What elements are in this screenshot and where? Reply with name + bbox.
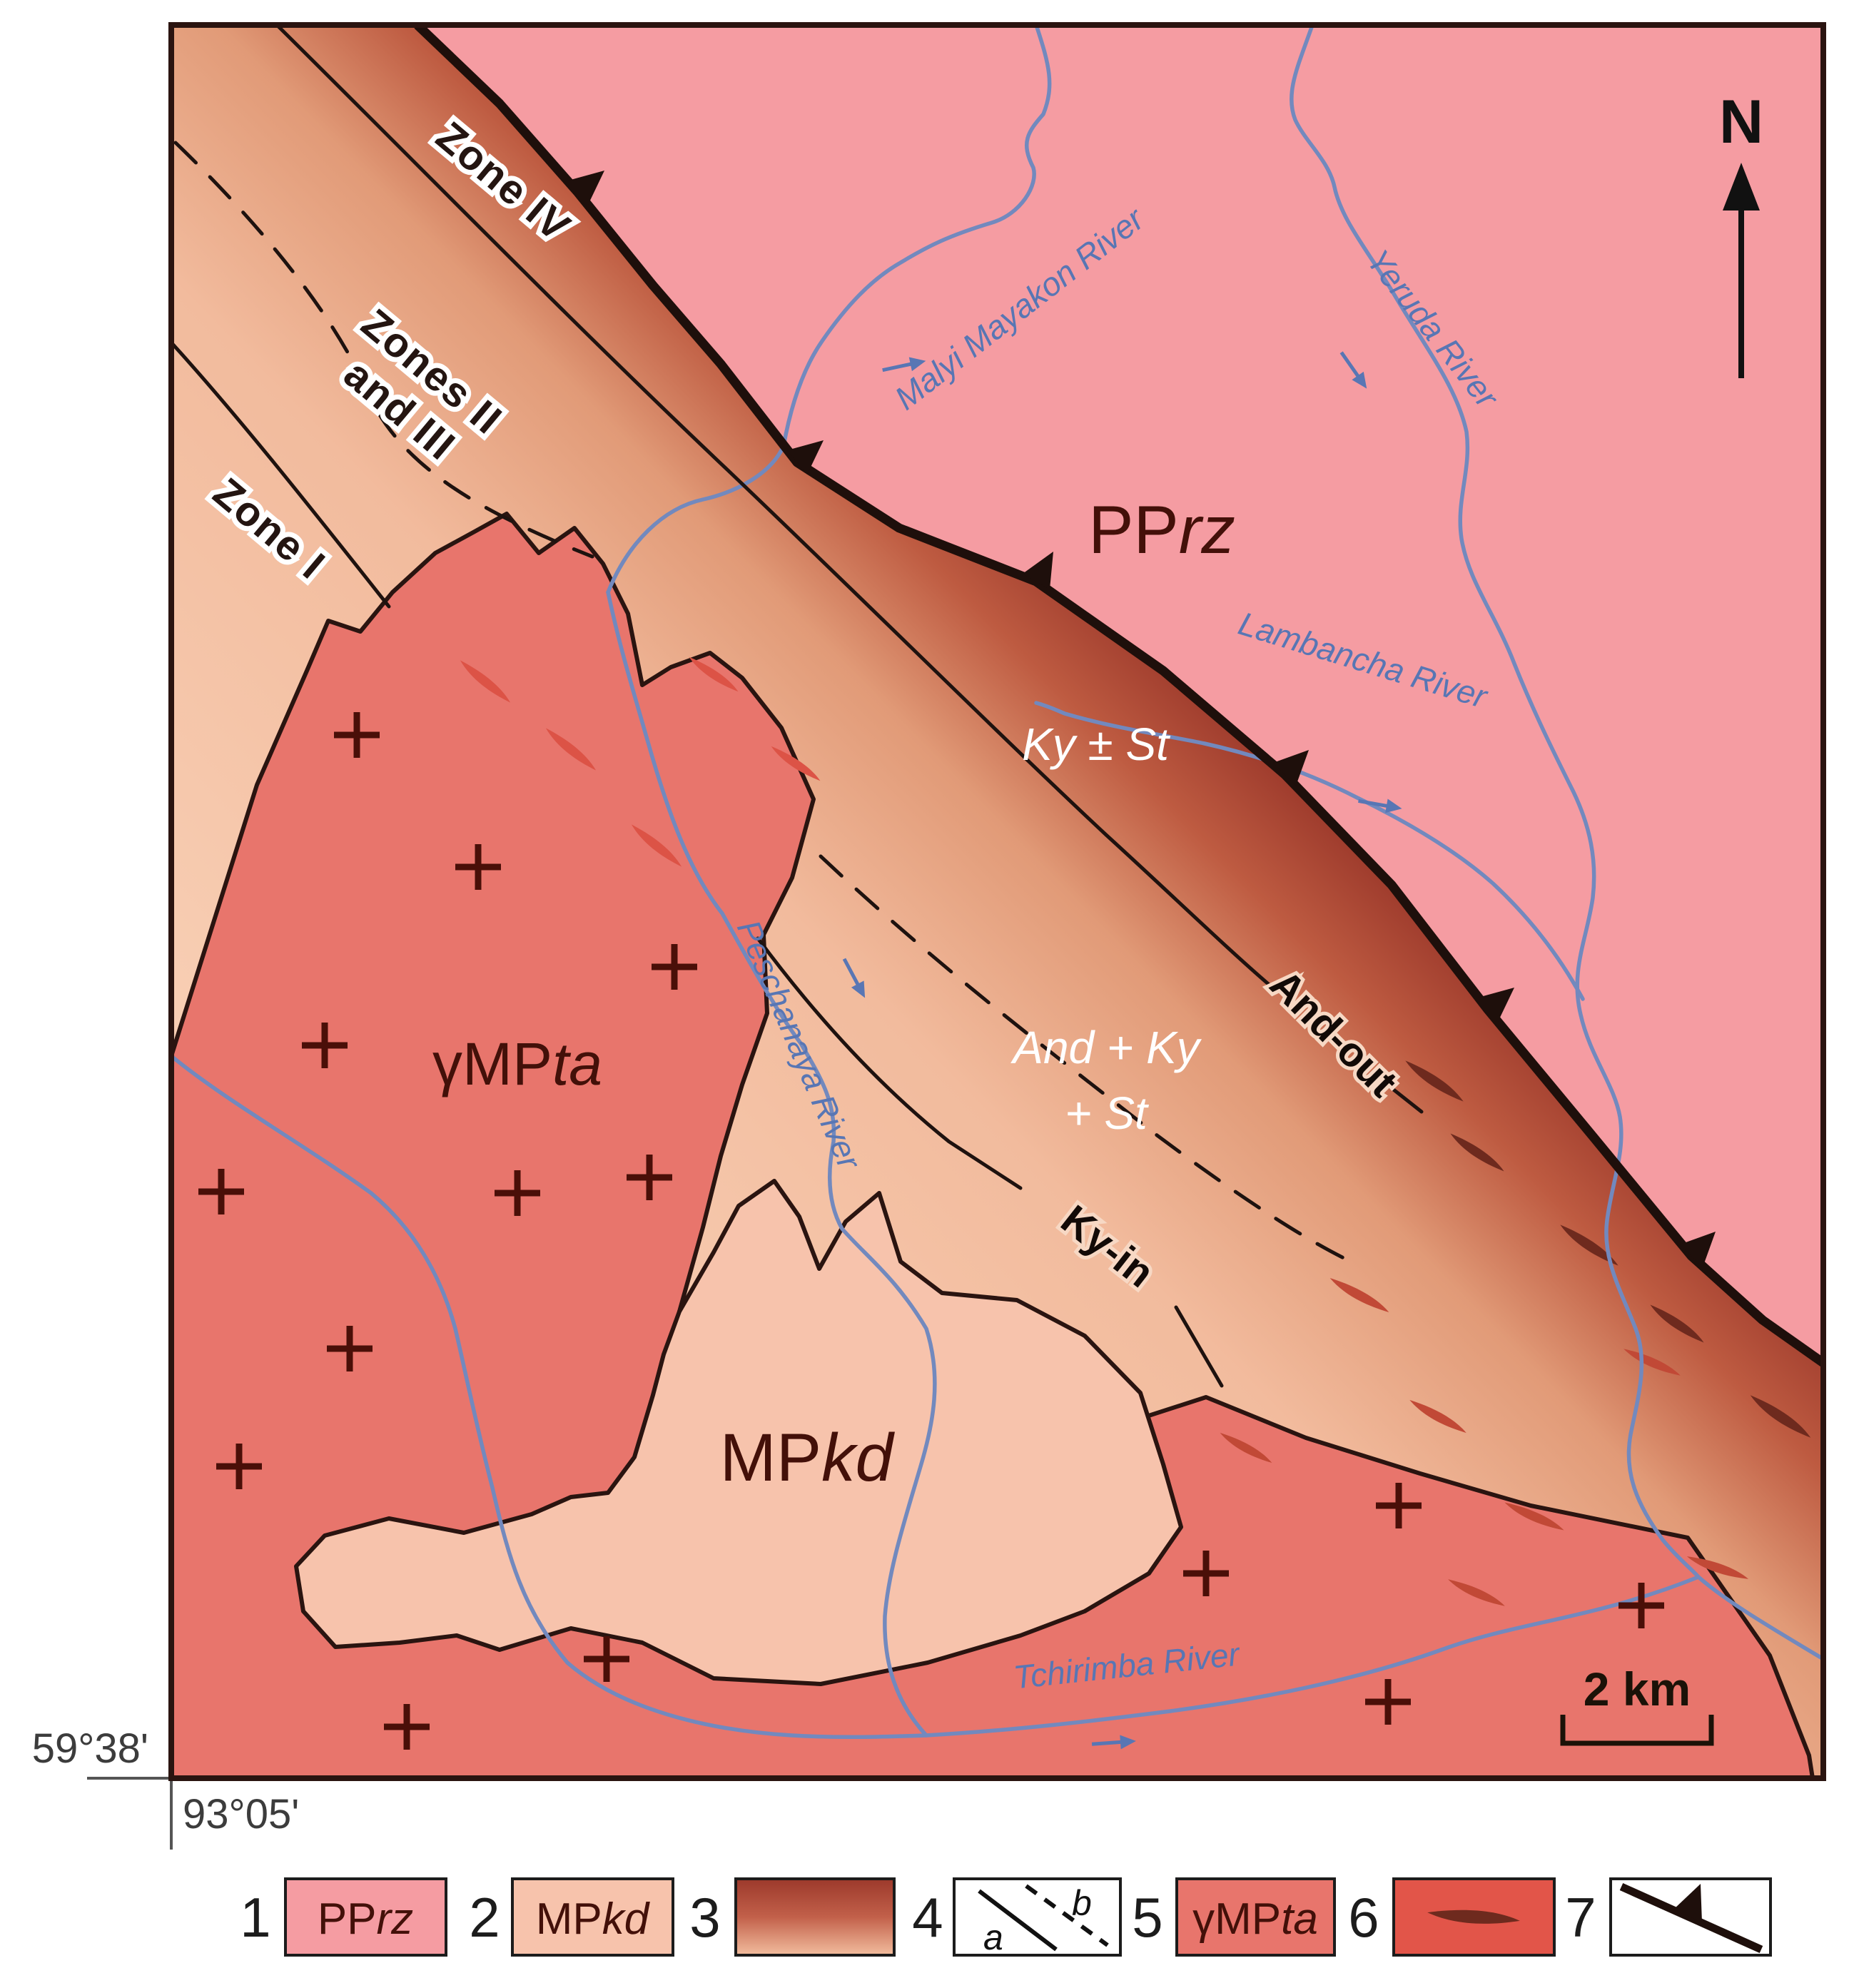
legend-number-5: 5	[1132, 1886, 1162, 1949]
legend: 1 PPrz 2 MPkd 3 4 a b 5 γMPta 6 7	[240, 1879, 1771, 1957]
legend-swatch-gradient	[736, 1879, 894, 1955]
legend-label-a: a	[983, 1917, 1003, 1957]
legend-label-ympta-italic: ta	[1281, 1895, 1318, 1944]
north-arrow-label: N	[1719, 88, 1763, 156]
legend-number-6: 6	[1348, 1886, 1379, 1949]
legend-label-pprz-roman: PP	[318, 1895, 377, 1944]
legend-label-ympta-roman: γMP	[1192, 1895, 1281, 1944]
scale-bar-label: 2 km	[1584, 1663, 1691, 1715]
geological-map: Malyi Mayakon River Yeruda River Lambanc…	[0, 0, 1849, 1988]
legend-number-3: 3	[689, 1886, 720, 1949]
legend-number-2: 2	[469, 1886, 500, 1949]
legend-number-1: 1	[240, 1886, 270, 1949]
unit-label-ympta: γMPta	[432, 1030, 602, 1097]
legend-label-ympta: γMPta	[1192, 1895, 1318, 1944]
label-ky-st: Ky ± St	[1022, 719, 1170, 770]
unit-label-mpkd: MPkd	[720, 1420, 896, 1496]
legend-swatch-boundaries: a b	[954, 1879, 1120, 1957]
longitude-label: 93°05'	[183, 1791, 299, 1837]
legend-label-mpkd-roman: MP	[536, 1895, 602, 1944]
legend-swatch-thrust	[1611, 1879, 1771, 1955]
unit-label-pprz-roman: PP	[1088, 492, 1179, 568]
legend-label-b: b	[1072, 1883, 1092, 1923]
unit-label-pprz: PPrz	[1088, 492, 1235, 568]
legend-label-pprz: PPrz	[318, 1895, 413, 1944]
legend-number-7: 7	[1565, 1886, 1596, 1949]
unit-label-ympta-italic: ta	[552, 1030, 602, 1097]
figure-canvas: Malyi Mayakon River Yeruda River Lambanc…	[0, 0, 1849, 1988]
unit-label-mpkd-roman: MP	[720, 1420, 822, 1496]
unit-label-pprz-italic: rz	[1179, 492, 1235, 568]
unit-label-mpkd-italic: kd	[821, 1420, 896, 1496]
label-plus-st: + St	[1065, 1087, 1149, 1139]
legend-swatch-dike	[1394, 1879, 1554, 1955]
label-and-ky: And + Ky	[1010, 1022, 1202, 1073]
legend-label-pprz-italic: rz	[377, 1895, 414, 1944]
latitude-label: 59°38'	[32, 1725, 148, 1772]
legend-number-4: 4	[912, 1886, 943, 1949]
unit-label-ympta-roman: γMP	[432, 1030, 552, 1097]
legend-label-mpkd-italic: kd	[602, 1895, 651, 1944]
legend-label-mpkd: MPkd	[536, 1895, 651, 1944]
